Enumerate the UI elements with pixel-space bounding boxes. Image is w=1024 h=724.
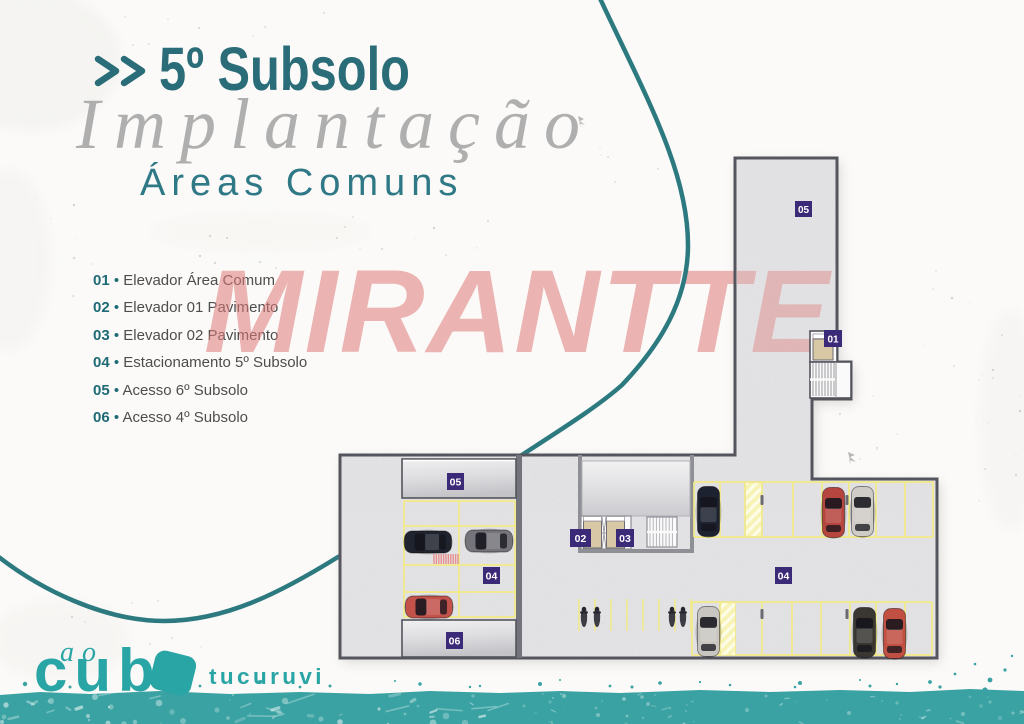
svg-text:05: 05 [798, 205, 810, 216]
svg-text:04: 04 [778, 571, 790, 583]
svg-text:05 • Acesso 6º Subsolo: 05 • Acesso 6º Subsolo [93, 382, 248, 399]
svg-text:05: 05 [450, 477, 462, 489]
svg-text:tucuruvi: tucuruvi [209, 664, 325, 689]
svg-text:Implantação: Implantação [75, 84, 594, 164]
svg-text:06 • Acesso 4º Subsolo: 06 • Acesso 4º Subsolo [93, 409, 248, 426]
svg-text:06: 06 [449, 636, 461, 648]
svg-text:03: 03 [619, 533, 631, 545]
svg-text:ao: ao [60, 637, 104, 668]
svg-text:04: 04 [486, 571, 498, 583]
svg-text:02: 02 [575, 533, 587, 545]
svg-text:01: 01 [827, 335, 839, 346]
svg-text:Áreas Comuns: Áreas Comuns [140, 161, 463, 204]
